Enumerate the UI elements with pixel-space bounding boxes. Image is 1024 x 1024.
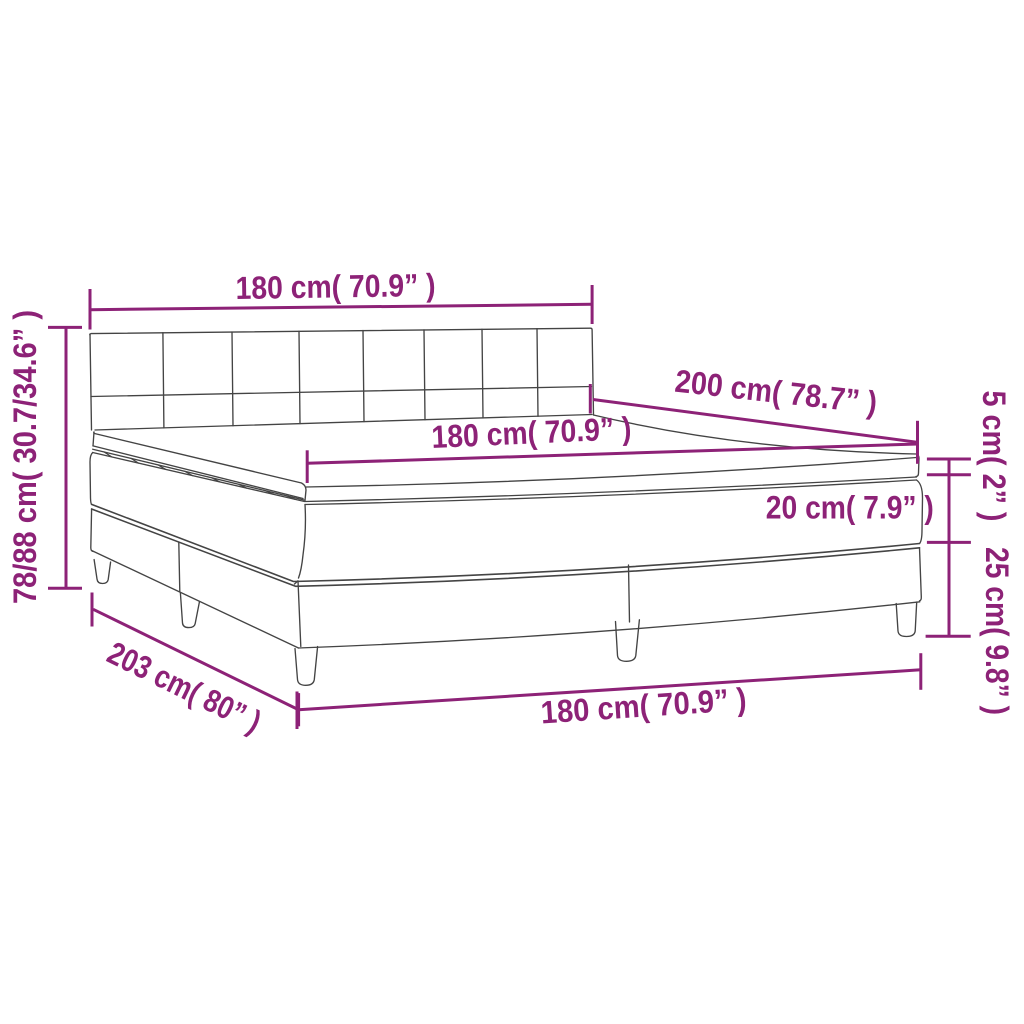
svg-text:25 cm( 9.8” ): 25 cm( 9.8” ) bbox=[979, 547, 1015, 715]
svg-text:180 cm( 70.9” ): 180 cm( 70.9” ) bbox=[235, 267, 436, 306]
svg-text:20 cm( 7.9” ): 20 cm( 7.9” ) bbox=[766, 489, 934, 525]
svg-text:5 cm( 2” ): 5 cm( 2” ) bbox=[976, 391, 1012, 522]
svg-text:78/88 cm( 30.7/34.6” ): 78/88 cm( 30.7/34.6” ) bbox=[7, 310, 43, 604]
